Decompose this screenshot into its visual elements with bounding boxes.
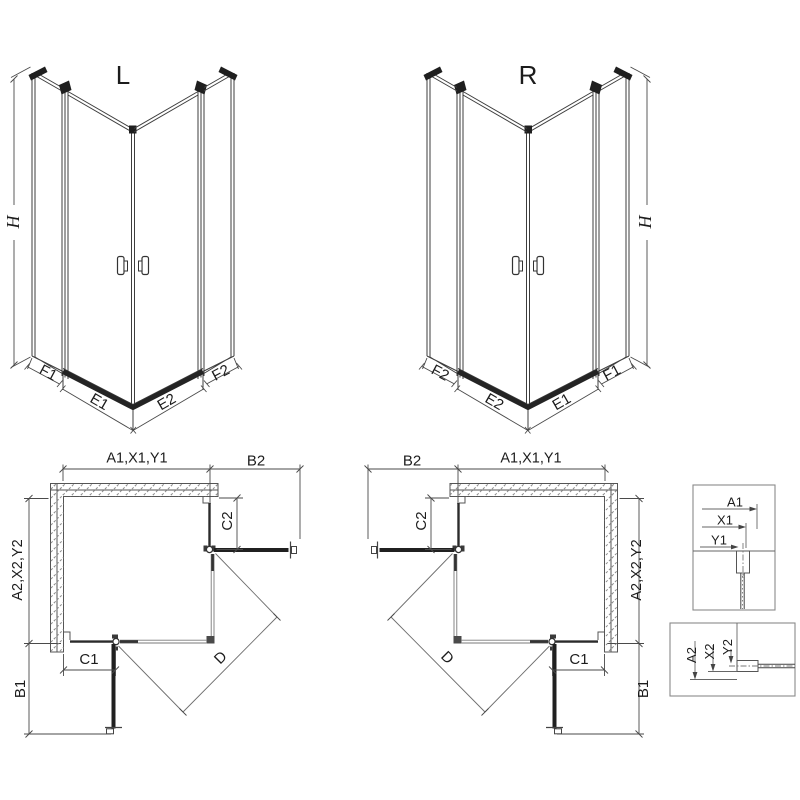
wall-hatching: [51, 484, 618, 653]
iso-left-f1-label: F1: [36, 361, 59, 384]
iso-left-height-label: H: [3, 215, 23, 230]
iso-left-title: L: [116, 60, 130, 90]
plan-right-diagonal-label: D: [437, 648, 457, 668]
detail-top-y1-label: Y1: [711, 533, 727, 548]
plan-left-diagonal-label: D: [211, 648, 231, 668]
technical-drawing-page: L H F1 E1 E2 F2 R H F2 E2 E1 F1 A1,X1,Y1…: [0, 0, 800, 800]
plan-left-c1-label: C1: [79, 651, 98, 668]
detail-top-a1-label: A1: [727, 495, 743, 510]
iso-right-f1-label: F1: [600, 361, 623, 384]
iso-view-left: L H F1 E1 E2 F2: [3, 60, 242, 434]
plan-left-width-label: A1,X1,Y1: [106, 451, 167, 467]
detail-view-top: A1 X1 Y1: [693, 485, 775, 610]
detail-bottom-y2-label: Y2: [720, 639, 735, 655]
plan-right-b2-label: B2: [403, 453, 421, 470]
plan-right-width-label: A1,X1,Y1: [500, 451, 561, 467]
shower-enclosure-diagram: L H F1 E1 E2 F2 R H F2 E2 E1 F1 A1,X1,Y1…: [0, 0, 800, 800]
iso-right-title: R: [519, 60, 538, 90]
iso-right-height-label: H: [635, 215, 655, 230]
plan-left-depth-label: A2,X2,Y2: [10, 539, 26, 600]
plan-left-b2-label: B2: [247, 453, 265, 470]
detail-top-x1-label: X1: [717, 513, 733, 528]
plan-right-c1-label: C1: [569, 651, 588, 668]
plan-left-b1-label: B1: [12, 680, 29, 698]
plan-right-b1-label: B1: [635, 680, 652, 698]
detail-view-bottom: A2 X2 Y2: [670, 623, 795, 696]
plan-right-depth-label: A2,X2,Y2: [629, 539, 645, 600]
iso-view-right: R H F2 E2 E1 F1: [419, 60, 655, 434]
plan-left-c2-label: C2: [219, 511, 236, 530]
detail-bottom-a2-label: A2: [684, 647, 699, 663]
plan-right-c2-label: C2: [413, 511, 430, 530]
detail-bottom-x2-label: X2: [702, 644, 717, 660]
